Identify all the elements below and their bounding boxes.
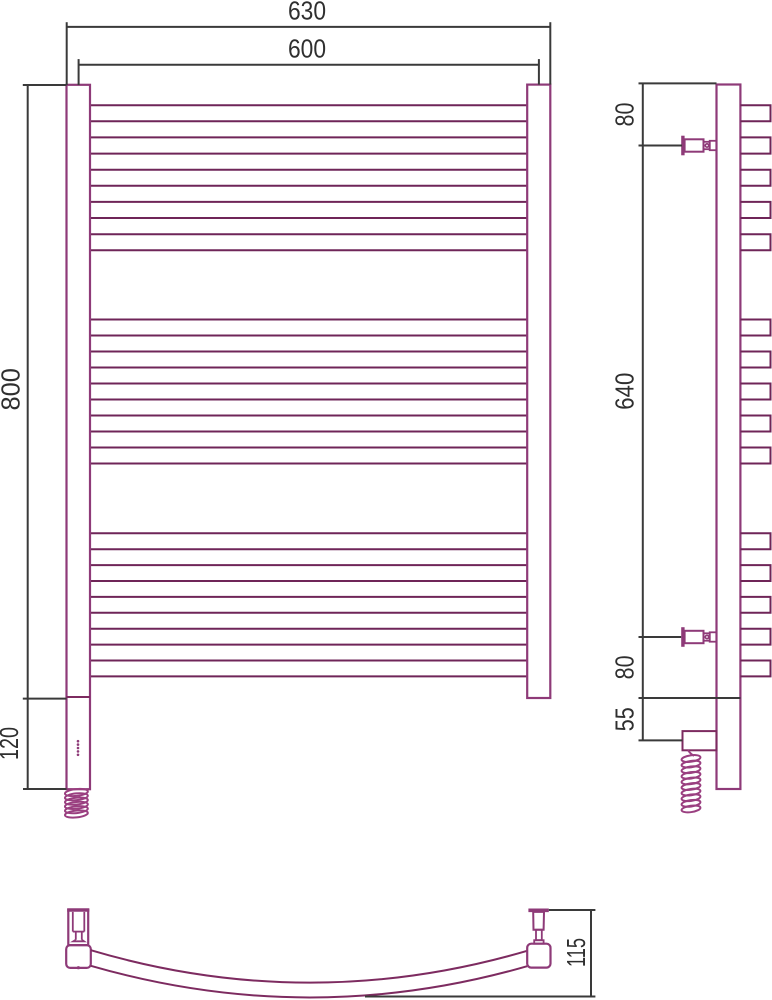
svg-text:55: 55	[610, 707, 640, 731]
svg-text:800: 800	[0, 368, 25, 411]
svg-text:600: 600	[288, 34, 326, 64]
svg-text:630: 630	[288, 0, 326, 26]
svg-text:640: 640	[610, 373, 640, 410]
svg-text:115: 115	[561, 938, 591, 967]
svg-text:80: 80	[610, 655, 640, 679]
svg-text:80: 80	[610, 103, 640, 127]
svg-text:120: 120	[0, 727, 24, 760]
